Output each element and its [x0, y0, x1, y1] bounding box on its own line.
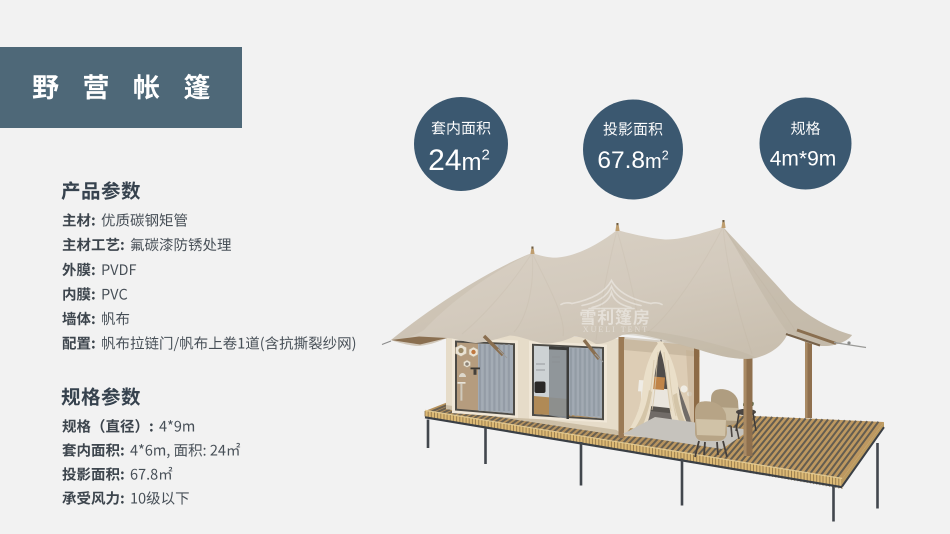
svg-text:24m2: 24m2 — [428, 144, 490, 177]
svg-text:XUELI TENT: XUELI TENT — [583, 325, 649, 334]
svg-text:4m*9m: 4m*9m — [770, 148, 837, 171]
svg-text:67.8m2: 67.8m2 — [597, 147, 668, 174]
